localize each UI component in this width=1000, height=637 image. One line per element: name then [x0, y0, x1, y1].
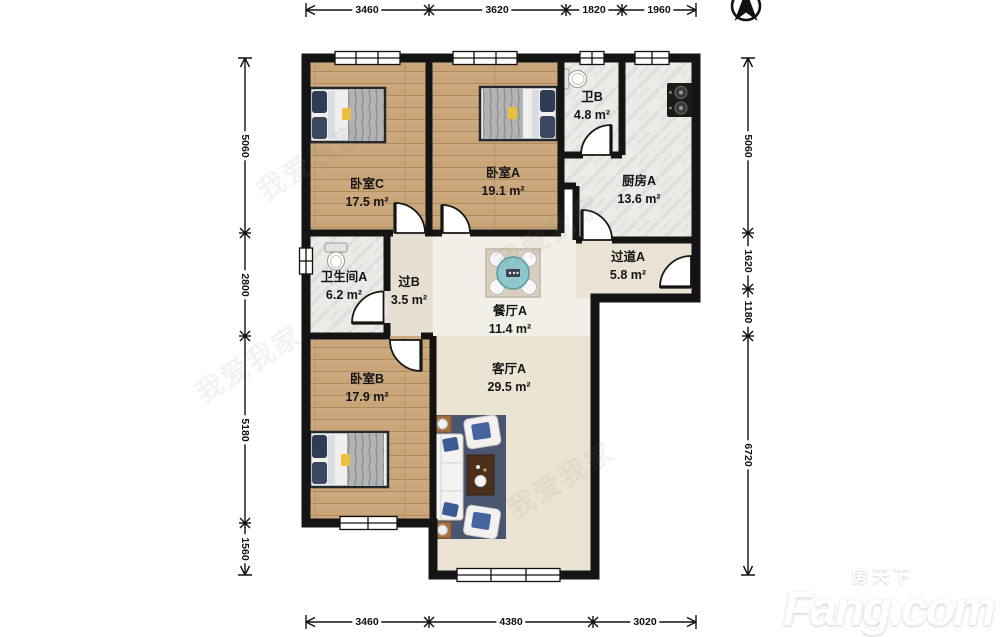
room-label-bedroom-c: 卧室C 17.5 m² — [345, 175, 388, 211]
room-label-bedroom-b: 卧室B 17.9 m² — [345, 370, 388, 406]
window-icon — [335, 52, 400, 65]
toilet-icon — [561, 69, 587, 89]
dim-right-1: 5060 — [742, 131, 754, 160]
stove-icon — [667, 83, 694, 117]
room-label-corridor-a: 过道A 5.8 m² — [610, 248, 646, 284]
window-icon — [300, 248, 313, 274]
dim-top-4: 1960 — [644, 4, 673, 16]
dim-bottom-2: 4380 — [496, 616, 525, 628]
dim-top-3: 1820 — [579, 4, 608, 16]
dim-left-2: 2800 — [239, 270, 251, 299]
dim-bottom-1: 3460 — [352, 616, 381, 628]
dim-left-3: 5180 — [239, 415, 251, 444]
dim-right-3: 1180 — [742, 298, 754, 327]
room-label-living: 客厅A 29.5 m² — [487, 360, 530, 396]
window-icon — [453, 52, 517, 65]
dim-right-2: 1620 — [742, 246, 754, 275]
room-label-bedroom-a: 卧室A 19.1 m² — [481, 164, 524, 200]
dim-left-1: 5060 — [239, 131, 251, 160]
room-label-bath-a: 卫生间A 6.2 m² — [321, 268, 368, 304]
bed-icon — [480, 87, 557, 140]
toilet-icon — [325, 243, 347, 270]
sofa-icon — [433, 415, 506, 540]
dim-top-2: 3620 — [482, 4, 511, 16]
window-icon — [340, 517, 397, 530]
dim-bottom-3: 3020 — [630, 616, 659, 628]
window-icon — [457, 569, 560, 582]
bed-icon — [310, 432, 388, 487]
fang-watermark-logo: 房天下 Fang.com — [783, 565, 998, 635]
window-icon — [580, 52, 604, 65]
room-label-kitchen: 厨房A 13.6 m² — [617, 172, 660, 208]
floorplan-page: 卧室C 17.5 m² 卧室A 19.1 m² 卫B 4.8 m² 厨房A 13… — [0, 0, 1000, 637]
north-compass-icon — [732, 0, 760, 21]
dim-right-4: 6720 — [742, 440, 754, 469]
dim-left-4: 1560 — [239, 534, 251, 563]
room-label-dining: 餐厅A 11.4 m² — [489, 302, 531, 338]
dim-top-1: 3460 — [352, 4, 381, 16]
fang-logo-english: Fang.com — [783, 582, 994, 637]
window-icon — [635, 52, 669, 65]
room-label-bath-b: 卫B 4.8 m² — [574, 88, 610, 124]
room-label-passage-b: 过B 3.5 m² — [391, 273, 427, 309]
